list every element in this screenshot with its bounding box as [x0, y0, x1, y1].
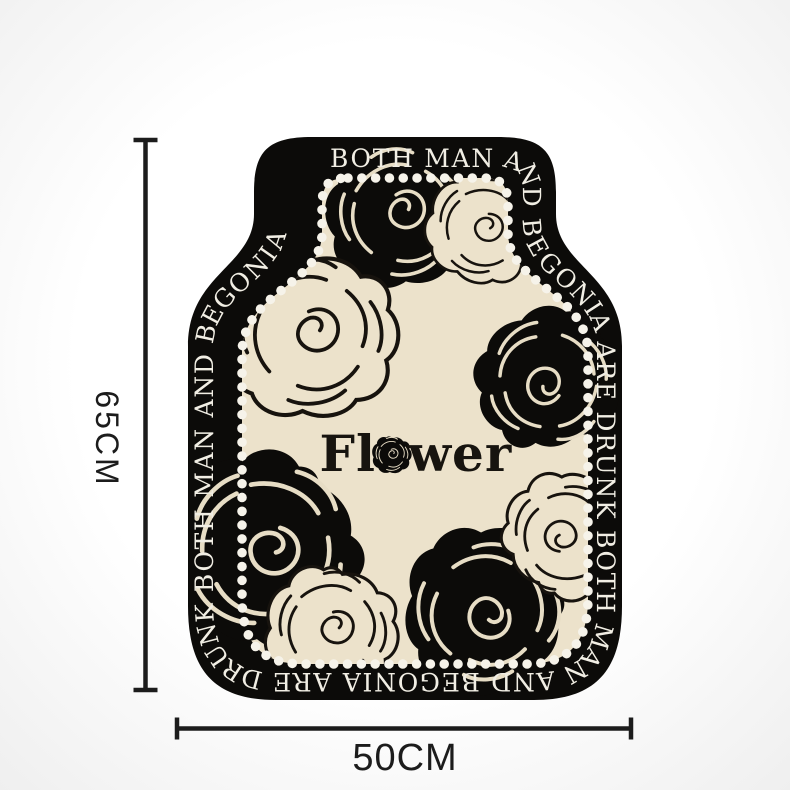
- car-floor-mat: BOTH MAN AND BEGONIA ARE DRUNK BOTH MAN …: [131, 132, 652, 702]
- rose-icon: [372, 436, 412, 473]
- width-dimension: 50CM: [177, 718, 631, 780]
- width-label: 50CM: [352, 737, 457, 779]
- brand-text-suffix: wer: [407, 424, 512, 483]
- brand-label: Fl wer: [320, 424, 513, 483]
- brand-text-prefix: Fl: [320, 424, 377, 483]
- height-dimension: 65CM: [89, 140, 158, 690]
- product-dimension-diagram: BOTH MAN AND BEGONIA ARE DRUNK BOTH MAN …: [0, 0, 790, 790]
- height-label: 65CM: [89, 390, 125, 487]
- mat-diagram-canvas: BOTH MAN AND BEGONIA ARE DRUNK BOTH MAN …: [0, 0, 790, 790]
